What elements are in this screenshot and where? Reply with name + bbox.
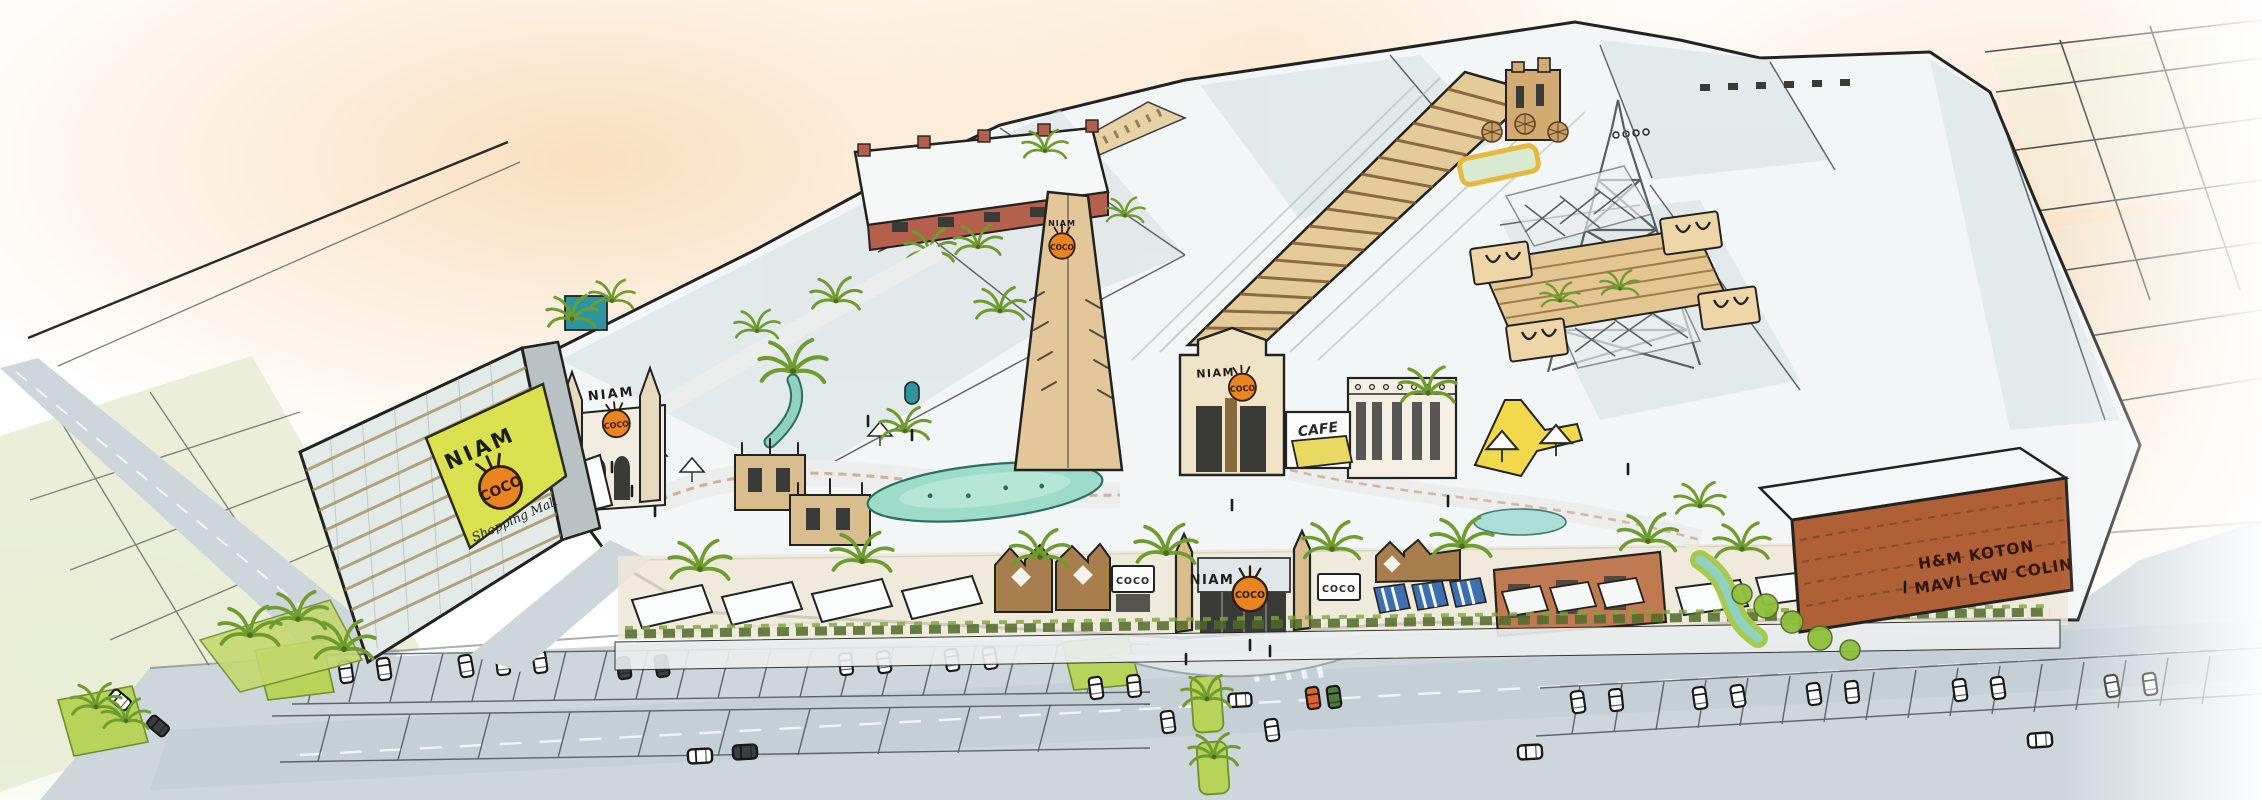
coco-shopboard-right-text: COCO <box>1322 584 1356 595</box>
east-pond <box>1474 509 1566 535</box>
coco-shopboard-left: COCO <box>1112 566 1154 612</box>
edge-fade <box>2060 0 2262 800</box>
illustration-stage: CAFE NIAM COCO NIAM C <box>0 0 2262 800</box>
obelisk-coco-text: COCO <box>1050 243 1074 252</box>
coco-shopboard-right: COCO <box>1318 574 1360 600</box>
central-gate-coco-text: COCO <box>1230 384 1256 394</box>
central-gate-niam-text: NIAM <box>1196 366 1235 381</box>
coco-shopboard-left-text: COCO <box>1116 576 1150 587</box>
south-gate-coco-text: COCO <box>1235 590 1265 601</box>
coco-logo: NIAM COCO <box>1048 219 1076 259</box>
teal-arch-window <box>905 382 919 404</box>
south-gate-niam-text: NIAM <box>1190 573 1235 588</box>
mall-aerial-rendering: CAFE NIAM COCO NIAM C <box>0 0 2262 800</box>
cafe-awning <box>1292 436 1352 468</box>
cafe-kiosk: CAFE <box>1286 412 1352 468</box>
